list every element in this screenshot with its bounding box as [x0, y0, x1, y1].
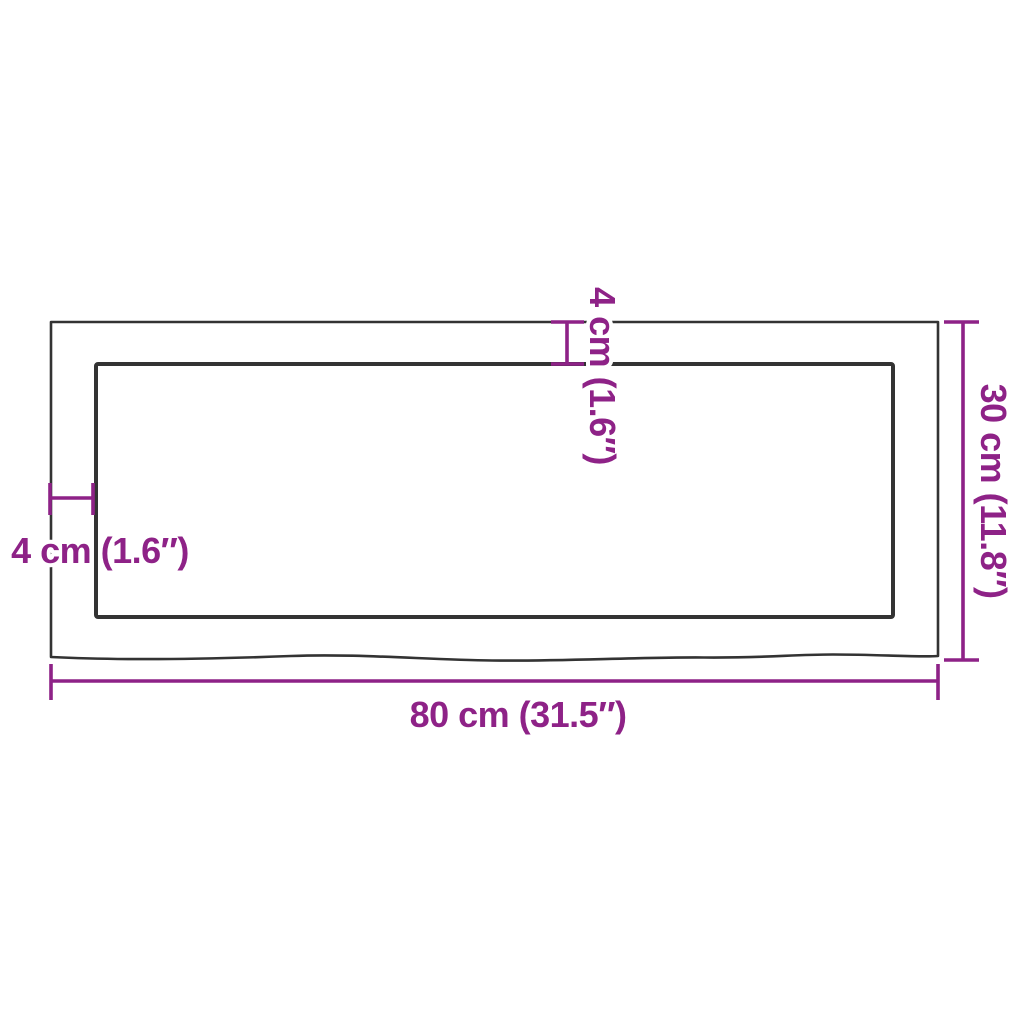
dimension-lines [50, 322, 979, 700]
edge-thickness-top-dimension-line [551, 322, 584, 364]
height-dimension-label: 30 cm (11.8″) [973, 384, 1014, 599]
tabletop-inner-surface [96, 364, 893, 617]
tabletop-outer-edge [51, 322, 938, 661]
dimension-diagram: 80 cm (31.5″) 30 cm (11.8″) 4 cm (1.6″) … [0, 0, 1024, 1024]
edge-thickness-left-label: 4 cm (1.6″) [11, 530, 189, 571]
edge-thickness-top-label-group: 4 cm (1.6″) [582, 287, 623, 465]
dimension-labels: 80 cm (31.5″) 30 cm (11.8″) 4 cm (1.6″) … [11, 287, 1014, 735]
edge-thickness-top-label: 4 cm (1.6″) [582, 287, 623, 465]
edge-thickness-left-dimension-line [50, 483, 93, 515]
width-dimension-label: 80 cm (31.5″) [410, 694, 627, 735]
dimension-diagram-canvas: 80 cm (31.5″) 30 cm (11.8″) 4 cm (1.6″) … [0, 0, 1024, 1024]
height-dimension-label-group: 30 cm (11.8″) [973, 384, 1014, 599]
tabletop-outlines [51, 322, 938, 661]
